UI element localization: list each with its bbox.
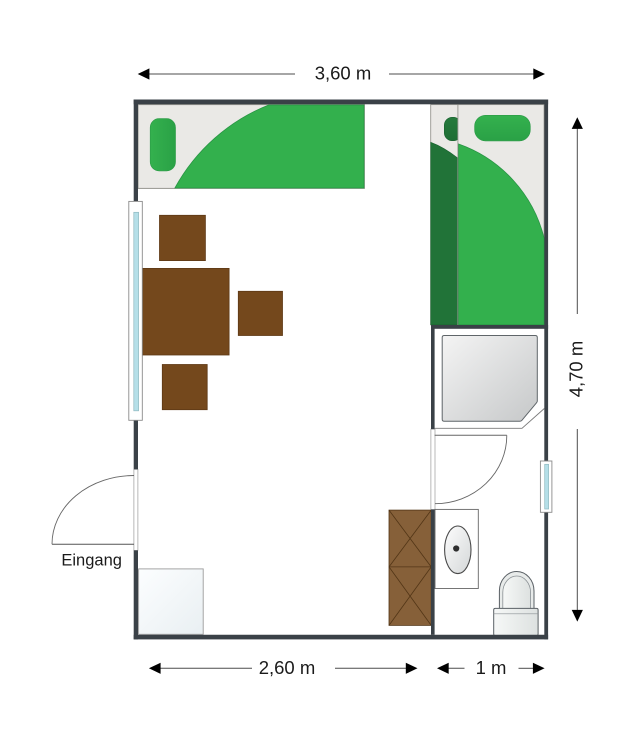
svg-text:1 m: 1 m <box>476 657 507 678</box>
svg-text:3,60 m: 3,60 m <box>315 63 372 84</box>
svg-text:4,70 m: 4,70 m <box>566 341 587 398</box>
svg-text:Eingang: Eingang <box>61 552 122 570</box>
svg-text:2,60 m: 2,60 m <box>259 657 316 678</box>
